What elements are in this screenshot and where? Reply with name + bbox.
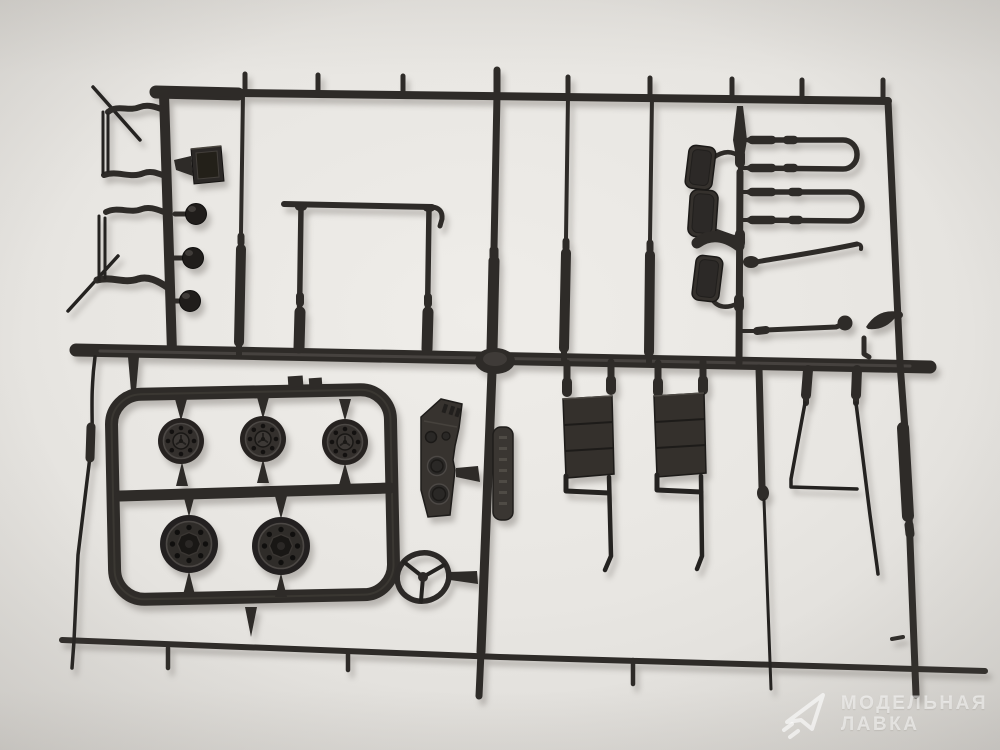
wiper-arm bbox=[743, 244, 861, 268]
windshield-frame bbox=[284, 203, 442, 351]
gear-lever bbox=[741, 316, 853, 332]
thin-rod-left bbox=[72, 357, 95, 668]
wire-bracket-frame-1 bbox=[93, 87, 168, 177]
watermark-line1: МОДЕЛЬНАЯ bbox=[841, 693, 988, 714]
embossed-part-number-tag bbox=[493, 427, 513, 520]
shop-logo-icon bbox=[779, 686, 831, 742]
watermark: МОДЕЛЬНАЯ ЛАВКА bbox=[779, 686, 988, 742]
steering-wheel bbox=[391, 546, 478, 608]
wire-bracket-frame-2 bbox=[68, 208, 170, 311]
rear-view-mirrors bbox=[684, 145, 740, 307]
watermark-line2: ЛАВКА bbox=[841, 714, 988, 735]
wheel-rims-large bbox=[160, 515, 310, 575]
wheel-hubs-small bbox=[158, 416, 368, 465]
mirror-bracket-u-tubes bbox=[741, 140, 862, 221]
sprue-parts-tree bbox=[0, 0, 1000, 750]
horn-balls bbox=[174, 204, 207, 312]
seat-backrest-2 bbox=[654, 362, 706, 569]
central-runner bbox=[475, 95, 515, 696]
seat-backrest-1 bbox=[563, 362, 614, 570]
mud-flap bbox=[174, 146, 224, 184]
wheel-frame-loop bbox=[111, 357, 394, 637]
thin-rods-right bbox=[757, 368, 878, 689]
mirror-runner bbox=[733, 106, 747, 363]
dashboard-panel bbox=[421, 399, 480, 517]
sprue-photo: МОДЕЛЬНАЯ ЛАВКА bbox=[0, 0, 1000, 750]
